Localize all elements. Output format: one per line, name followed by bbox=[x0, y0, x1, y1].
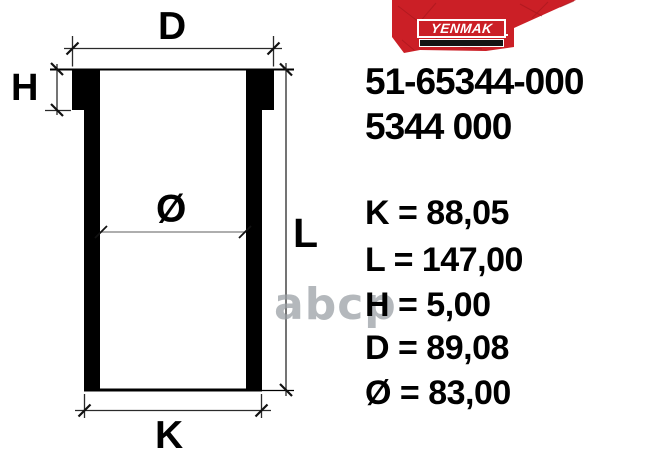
part-number-primary: 51-65344-000 bbox=[365, 63, 583, 100]
spec-line-D: D = 89,08 bbox=[365, 331, 509, 365]
dim-label-K: K bbox=[155, 416, 183, 455]
liner-wall-left bbox=[84, 69, 100, 390]
dim-label-D: D bbox=[158, 7, 186, 46]
brand-logo-text: YENMAK bbox=[430, 22, 493, 36]
spec-line-K: K = 88,05 bbox=[365, 196, 509, 230]
brand-banner: YENMAK bbox=[390, 0, 578, 56]
spec-line-L: L = 147,00 bbox=[365, 243, 523, 277]
brand-logo-box: YENMAK bbox=[417, 19, 506, 38]
spec-line-H: H = 5,00 bbox=[365, 288, 490, 322]
dim-label-H: H bbox=[11, 69, 38, 107]
brand-logo-underline bbox=[419, 39, 504, 47]
dim-label-bore: Ø bbox=[156, 190, 186, 229]
part-number-secondary: 5344 000 bbox=[365, 108, 511, 145]
brand-logo-reg-mark bbox=[506, 34, 508, 36]
spec-line-bore: Ø = 83,00 bbox=[365, 376, 511, 410]
dim-label-L: L bbox=[293, 213, 318, 254]
product-card: D H Ø L K abcp YENMA bbox=[0, 0, 650, 457]
